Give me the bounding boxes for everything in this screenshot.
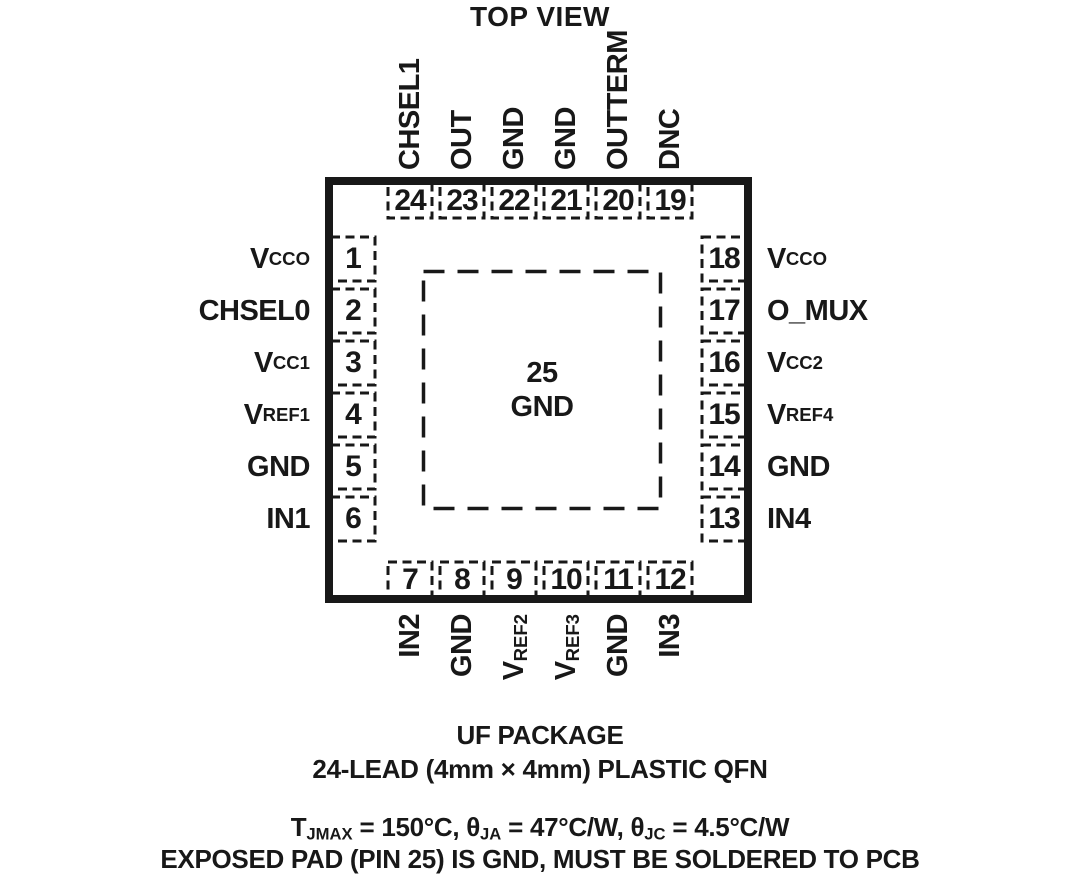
label-text: V [767,347,786,380]
pin-9-number: 9 [492,562,536,597]
label-subscript: CCO [269,248,310,270]
label-text: IN3 [654,614,686,658]
label-text: = 4.5°C/W [665,812,789,842]
label-text: V [767,399,786,432]
label-text: CHSEL0 [199,295,310,328]
label-text: GND [602,614,634,677]
pin-4-number: 4 [331,393,375,437]
label-subscript: REF1 [263,404,310,426]
pin-6-number: 6 [331,497,375,541]
pin-18-number: 18 [702,237,746,281]
pin-11-number: 11 [596,562,640,597]
exposed-pad-number: 25 [526,356,557,390]
label-text: O_MUX [767,295,868,328]
pin-label-text: VREF3 [551,614,588,680]
pin-1-label: VCCO [250,237,310,281]
label-text: IN2 [394,614,426,658]
pin-label-text: IN3 [655,614,685,658]
pin-7-number: 7 [388,562,432,597]
pin-20-number: 20 [596,183,640,218]
pin-label-text: DNC [655,109,685,170]
pin-5-label: GND [247,445,310,489]
label-subscript: REF2 [510,614,531,661]
label-subscript: CCO [786,248,827,270]
pin-14-number: 14 [702,445,746,489]
pin-19-number: 19 [648,183,692,218]
pin-15-label: VREF4 [767,393,833,437]
pin-8-number: 8 [440,562,484,597]
pin-16-number: 16 [702,341,746,385]
label-text: DNC [654,109,686,170]
label-text: IN1 [266,503,310,536]
label-text: = 47°C/W, θ [501,812,644,842]
pin-24-number: 24 [388,183,432,218]
pin-label-text: OUTTERM [603,30,633,170]
exposed-pad-name: GND [511,390,574,424]
label-text: V [498,661,530,680]
pin-21-number: 21 [544,183,588,218]
pin-label-text: GND [447,614,477,677]
label-text: GND [446,614,478,677]
pin-2-label: CHSEL0 [199,289,310,333]
label-subscript: JMAX [306,825,352,844]
pin-6-label: IN1 [266,497,310,541]
label-text: V [767,243,786,276]
pin-23-number: 23 [440,183,484,218]
label-text: OUTTERM [602,30,634,170]
label-subscript: REF3 [562,614,583,661]
pin-2-number: 2 [331,289,375,333]
label-text: OUT [446,110,478,170]
pin-22-number: 22 [492,183,536,218]
label-subscript: JA [480,825,501,844]
exposed-pad-note: EXPOSED PAD (PIN 25) IS GND, MUST BE SOL… [0,843,1080,875]
label-text: T [291,812,307,842]
pin-17-number: 17 [702,289,746,333]
pin-label-text: IN2 [395,614,425,658]
pin-14-label: GND [767,445,830,489]
pin-15-number: 15 [702,393,746,437]
label-text: IN4 [767,503,811,536]
pin-13-label: IN4 [767,497,811,541]
pin-3-number: 3 [331,341,375,385]
pin-label-text: CHSEL1 [395,59,425,170]
label-text: GND [498,107,530,170]
pin-10-number: 10 [544,562,588,597]
label-text: V [244,399,263,432]
label-text: GND [247,451,310,484]
pin-4-label: VREF1 [244,393,310,437]
pin-16-label: VCC2 [767,341,823,385]
pin-18-label: VCCO [767,237,827,281]
pin-label-text: GND [603,614,633,677]
label-text: V [550,661,582,680]
pin-label-text: GND [499,107,529,170]
label-text: GND [767,451,830,484]
pin-13-number: 13 [702,497,746,541]
pin-12-number: 12 [648,562,692,597]
pin-label-text: GND [551,107,581,170]
pin-1-number: 1 [331,237,375,281]
pin-label-text: VREF2 [499,614,536,680]
package-name: UF PACKAGE [0,719,1080,751]
label-subscript: CC2 [786,352,823,374]
pin-5-number: 5 [331,445,375,489]
pin-17-label: O_MUX [767,289,868,333]
label-text: V [250,243,269,276]
label-subscript: REF4 [786,404,833,426]
package-description: 24-LEAD (4mm × 4mm) PLASTIC QFN [0,753,1080,785]
pinout-diagram: TOP VIEW 2423222120197891011121234561817… [0,0,1080,884]
pin-label-text: OUT [447,110,477,170]
label-subscript: JC [644,825,665,844]
label-text: V [254,347,273,380]
pin-3-label: VCC1 [254,341,310,385]
label-subscript: CC1 [273,352,310,374]
label-text: = 150°C, θ [353,812,480,842]
exposed-pad-text: 25 GND [422,270,662,510]
label-text: GND [550,107,582,170]
label-text: CHSEL1 [394,59,426,170]
